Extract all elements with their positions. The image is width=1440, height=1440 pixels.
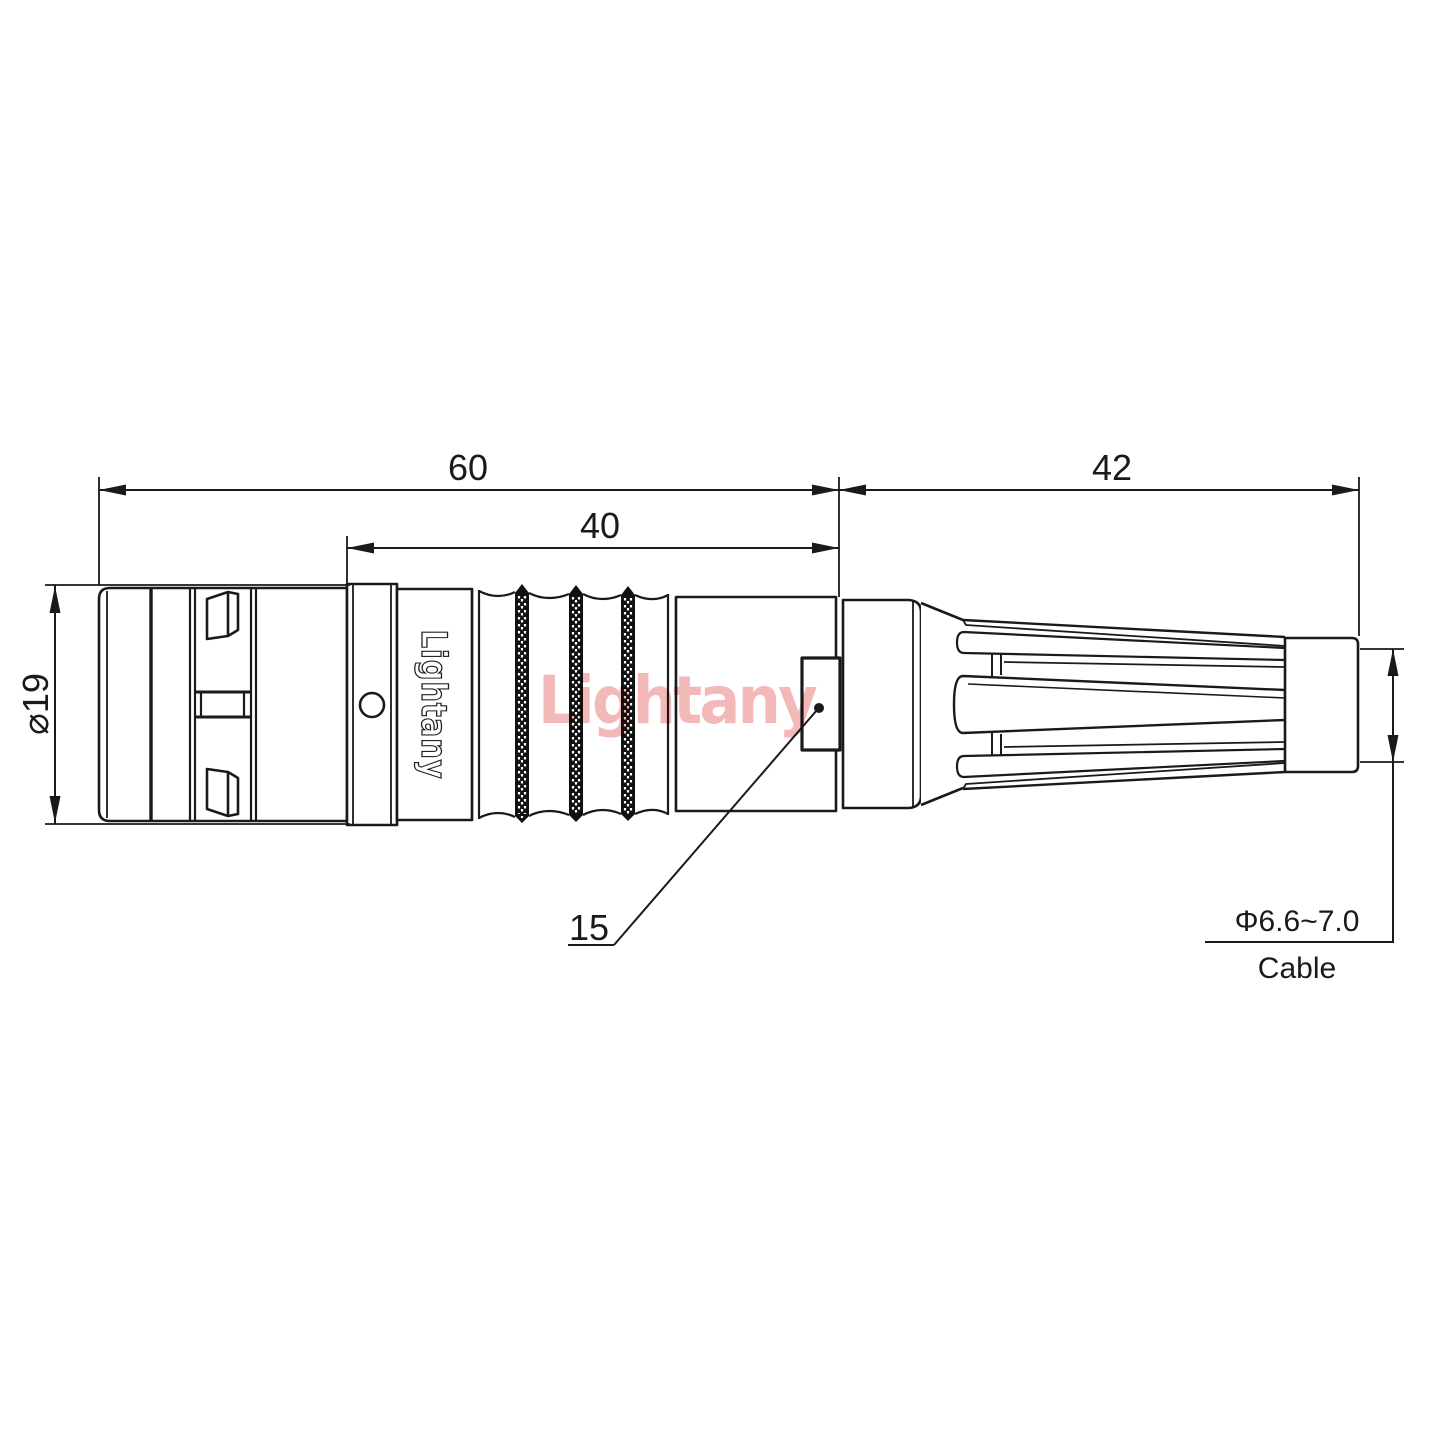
cable-word-label: Cable — [1258, 952, 1336, 985]
coupling-key-bottom — [207, 769, 238, 816]
coupling-key-top — [207, 592, 238, 639]
dim-cable-arrow-bottom — [1388, 735, 1399, 762]
knurl-band — [515, 584, 529, 823]
boot-gland-collar — [843, 600, 921, 808]
dim-42-arrow-left — [839, 485, 866, 496]
cable-ferrule — [1285, 638, 1358, 772]
dim-40-arrow-left — [347, 543, 374, 554]
vent-hole — [360, 693, 384, 717]
dim-19-arrow-top — [50, 586, 61, 613]
dim-60-label: 60 — [448, 447, 488, 488]
dim-42-arrow-right — [1332, 485, 1359, 496]
leader-15-label: 15 — [569, 907, 609, 948]
dim-cable-arrow-top — [1388, 649, 1399, 676]
technical-drawing-canvas: Lightany — [0, 0, 1440, 1440]
dim-42-label: 42 — [1092, 447, 1132, 488]
strain-relief-boot — [921, 603, 1285, 805]
cable-diameter-label: Φ6.6~7.0 — [1235, 905, 1360, 938]
dim-60 — [99, 477, 839, 597]
grip-knurl-left-edges — [472, 589, 479, 820]
watermark-text: Lightany — [538, 668, 815, 734]
dim-60-arrow-left — [99, 485, 126, 496]
dim-19-arrow-bottom — [50, 796, 61, 823]
dim-40-arrow-right — [812, 543, 839, 554]
dim-19-label: ⌀19 — [15, 673, 56, 735]
dim-60-arrow-right — [812, 485, 839, 496]
leader-15-dot — [814, 703, 824, 713]
brand-text-vertical: Lightany — [413, 630, 453, 780]
dim-40-label: 40 — [580, 505, 620, 546]
